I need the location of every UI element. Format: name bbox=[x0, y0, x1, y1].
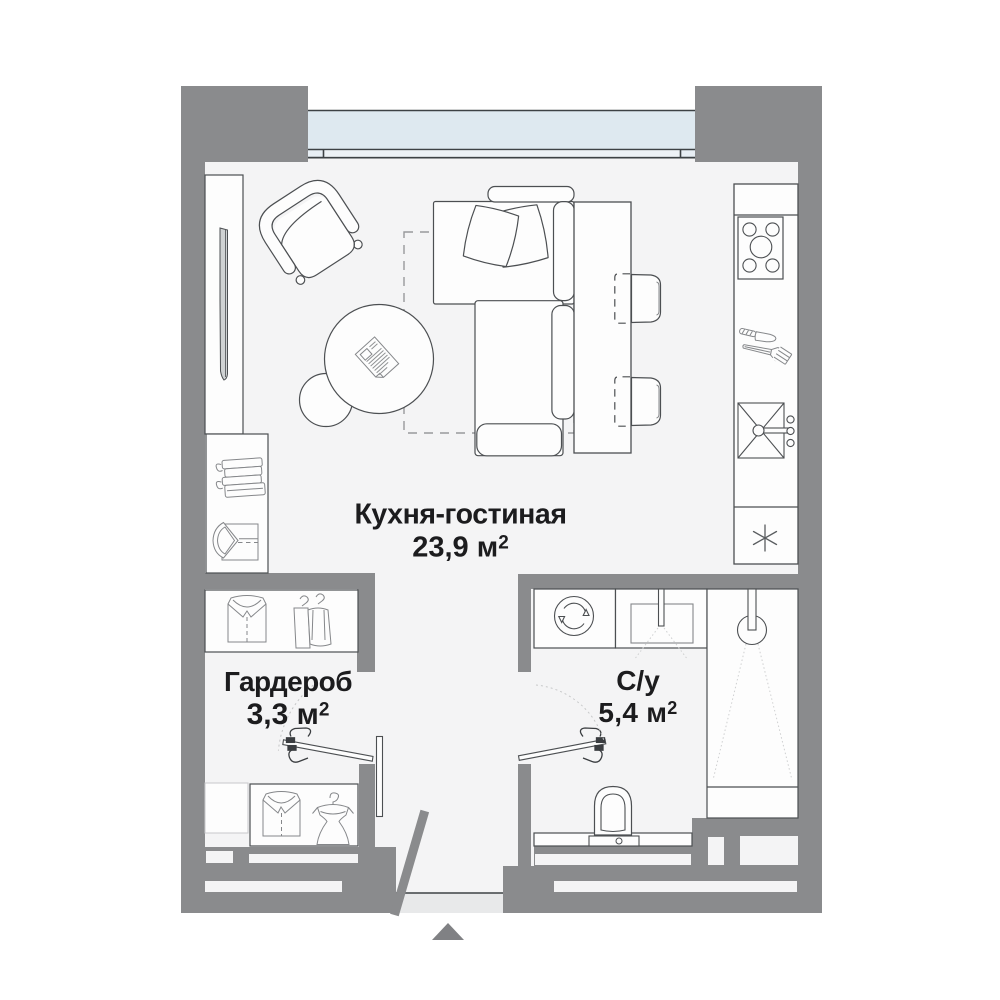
svg-text:С/у: С/у bbox=[616, 665, 660, 696]
svg-text:3,3 м2: 3,3 м2 bbox=[247, 698, 330, 731]
svg-text:5,4 м2: 5,4 м2 bbox=[598, 697, 677, 728]
svg-text:Гардероб: Гардероб bbox=[224, 666, 352, 697]
svg-text:23,9 м2: 23,9 м2 bbox=[412, 532, 509, 564]
svg-text:Кухня-гостиная: Кухня-гостиная bbox=[354, 499, 566, 531]
